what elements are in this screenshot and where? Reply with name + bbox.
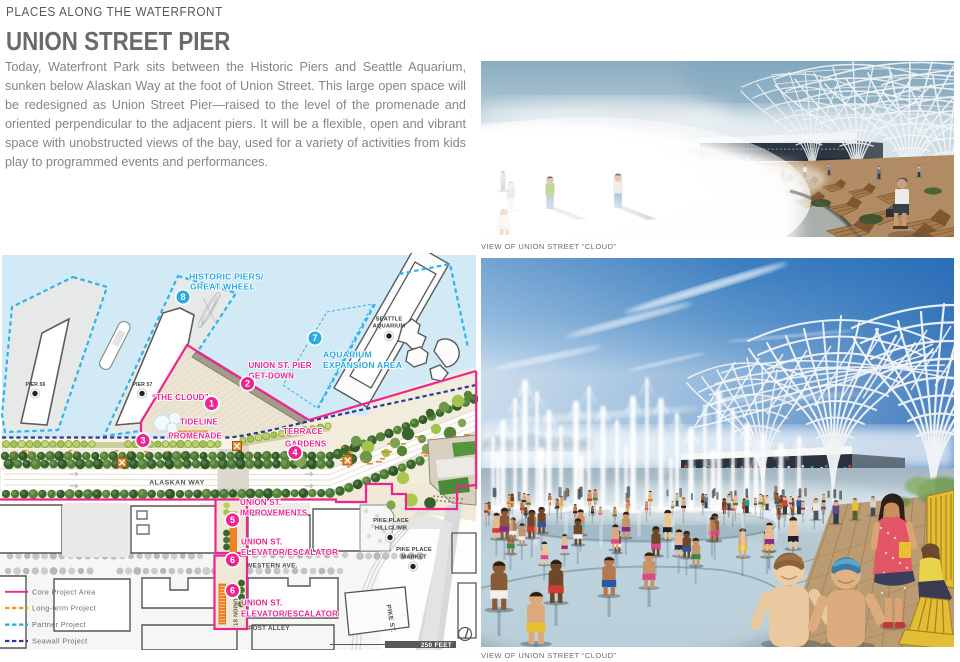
- svg-text:AQUARIUM: AQUARIUM: [323, 350, 372, 360]
- svg-text:8: 8: [180, 292, 185, 302]
- svg-text:SEATTLE: SEATTLE: [376, 317, 403, 323]
- svg-text:4: 4: [292, 448, 297, 458]
- svg-text:MARKET: MARKET: [401, 555, 427, 561]
- svg-text:3: 3: [140, 436, 145, 446]
- svg-text:PROMENADE: PROMENADE: [168, 432, 222, 441]
- svg-text:WESTERN AVE.: WESTERN AVE.: [246, 563, 298, 570]
- svg-text:POST ALLEY: POST ALLEY: [248, 625, 290, 632]
- svg-text:UNION ST.: UNION ST.: [232, 599, 238, 628]
- svg-text:6: 6: [230, 555, 235, 565]
- svg-text:UNION ST.: UNION ST.: [241, 599, 282, 608]
- svg-text:Seawall Project: Seawall Project: [32, 637, 88, 646]
- svg-text:AQUARIUM: AQUARIUM: [373, 324, 406, 330]
- svg-text:6: 6: [230, 586, 235, 596]
- svg-text:7: 7: [312, 333, 317, 343]
- svg-text:GREAT WHEEL: GREAT WHEEL: [190, 282, 255, 292]
- svg-text:5: 5: [230, 515, 235, 525]
- svg-text:UNION ST. PIER: UNION ST. PIER: [249, 361, 312, 370]
- svg-text:TERRACE: TERRACE: [283, 427, 324, 436]
- svg-text:ALASKAN WAY: ALASKAN WAY: [149, 479, 204, 486]
- svg-text:Long-term Project: Long-term Project: [32, 604, 96, 613]
- svg-text:PIKE PLACE: PIKE PLACE: [396, 547, 432, 553]
- svg-text:HILLCLIMB: HILLCLIMB: [375, 526, 407, 532]
- svg-text:ELEVATOR/ESCALATOR: ELEVATOR/ESCALATOR: [241, 610, 338, 619]
- svg-text:UNION ST.: UNION ST.: [241, 538, 282, 547]
- svg-text:ELEVATOR/ESCALATOR: ELEVATOR/ESCALATOR: [241, 548, 338, 557]
- svg-text:TIDELINE: TIDELINE: [180, 418, 219, 427]
- svg-text:Core Project Area: Core Project Area: [32, 587, 96, 596]
- svg-text:250 FEET: 250 FEET: [421, 642, 452, 649]
- svg-text:HISTORIC PIERS/: HISTORIC PIERS/: [189, 272, 264, 282]
- svg-text:GET-DOWN: GET-DOWN: [249, 372, 295, 381]
- svg-text:PIER 57: PIER 57: [132, 382, 152, 388]
- svg-text:UNION ST.: UNION ST.: [240, 498, 281, 507]
- svg-text:1: 1: [209, 399, 214, 409]
- svg-text:“THE CLOUD”: “THE CLOUD”: [152, 393, 209, 402]
- svg-text:IMPROVEMENTS: IMPROVEMENTS: [240, 509, 308, 518]
- svg-text:EXPANSION AREA: EXPANSION AREA: [323, 360, 402, 370]
- svg-text:Partner Project: Partner Project: [32, 620, 86, 629]
- svg-text:2: 2: [245, 379, 250, 389]
- svg-text:PIKE PLACE: PIKE PLACE: [373, 518, 409, 524]
- svg-text:PIER 56: PIER 56: [25, 382, 45, 388]
